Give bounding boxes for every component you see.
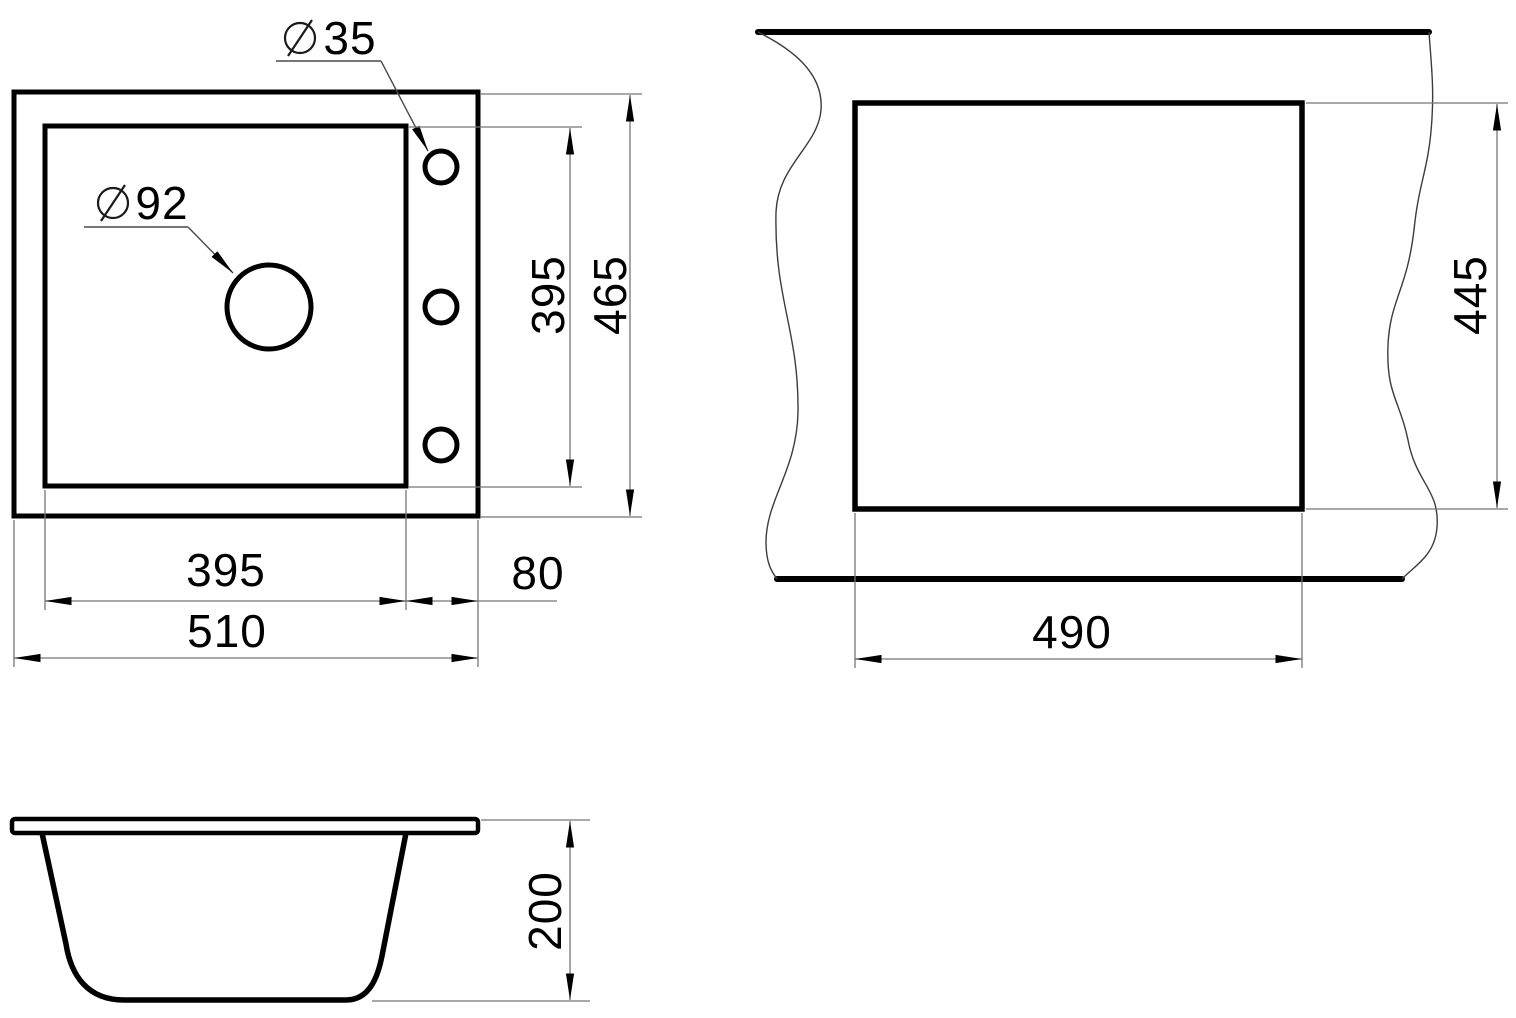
break-line-left (758, 32, 821, 579)
dim-text-bowl-width: 395 (186, 544, 266, 596)
break-line-right (1388, 32, 1437, 579)
dim-bowl-width: 395 (45, 490, 406, 610)
bowl-section-outline (42, 833, 406, 1000)
drawing-sheet: 35 92 395 465 (0, 0, 1516, 1018)
dim-text-ledge-width: 80 (511, 547, 564, 599)
tap-hole-bottom (425, 429, 457, 461)
drain-hole (227, 265, 311, 349)
dim-text-cutout-depth: 445 (1444, 255, 1496, 335)
dim-text-bowl-depth: 395 (522, 255, 574, 335)
tap-hole-top (425, 151, 457, 183)
dim-text-bowl-height: 200 (519, 871, 571, 951)
diameter-symbol-icon (98, 185, 128, 221)
dim-text-overall-width: 510 (187, 605, 267, 657)
dim-text-cutout-width: 490 (1032, 606, 1112, 658)
dim-cutout-depth: 445 (1306, 103, 1508, 509)
drain-diameter-value: 92 (135, 177, 188, 229)
technical-drawing: 35 92 395 465 (0, 0, 1516, 1018)
dim-ledge-width: 80 (406, 547, 565, 601)
tap-hole-middle (425, 291, 457, 323)
leader-arrow (188, 227, 233, 273)
dim-text-overall-depth: 465 (584, 255, 636, 335)
rim-section-outline (12, 819, 478, 833)
dim-cutout-width: 490 (855, 513, 1302, 668)
tap-hole-diameter-value: 35 (323, 12, 376, 64)
top-view: 35 92 395 465 (14, 12, 642, 667)
cutout-view: 445 490 (758, 32, 1508, 668)
side-view: 200 (12, 819, 590, 1001)
diameter-symbol-icon (285, 20, 315, 56)
cutout-outline (855, 103, 1302, 509)
callout-drain-diameter: 92 (84, 177, 233, 273)
